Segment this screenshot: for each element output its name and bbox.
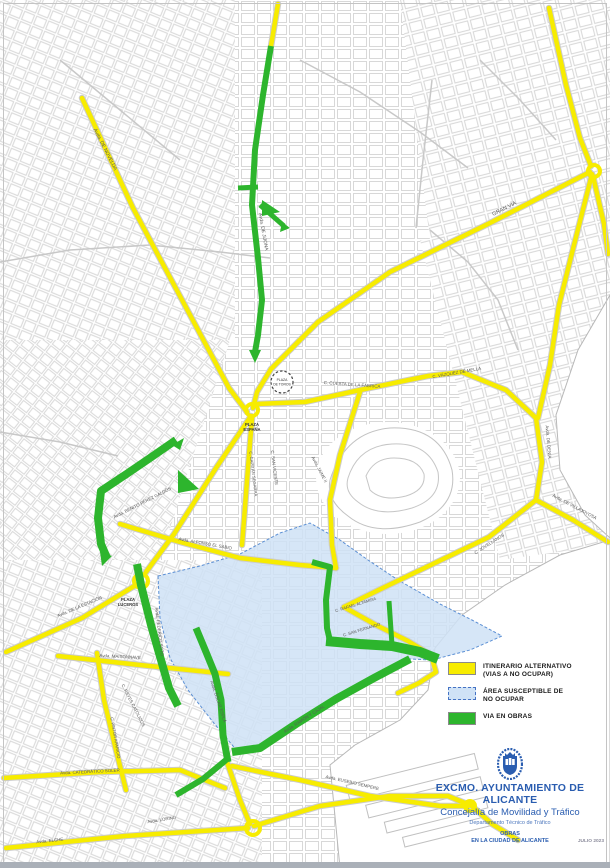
- map-page: PLAZADE TOROSPLAZAESPAÑAPLAZALUCEROS Avd…: [0, 0, 610, 868]
- plaza-label: LUCEROS: [118, 602, 139, 607]
- legend-label: VIA EN OBRAS: [483, 712, 532, 721]
- department-name: Concejalía de Movilidad y Tráfico: [410, 807, 610, 818]
- plaza-de-toros-label: PLAZA: [277, 378, 288, 382]
- via-en-obras-route: [238, 187, 258, 188]
- map-legend: ITINERARIO ALTERNATIVO (VIAS A NO OCUPAR…: [448, 662, 606, 733]
- yellow-swatch: [448, 662, 476, 675]
- blue-dashed-swatch: [448, 687, 476, 700]
- title-block: EXCMO. AYUNTAMIENTO DE ALICANTE Concejal…: [410, 748, 610, 845]
- document-date: JULIO 2023: [578, 839, 604, 844]
- page-bottom-edge: [0, 862, 610, 868]
- svg-text:DE TOROS: DE TOROS: [273, 383, 291, 387]
- alicante-coat-of-arms: [497, 748, 523, 780]
- legend-item-area: ÁREA SUSCEPTIBLE DE NO OCUPAR: [448, 687, 606, 704]
- sub-department-name: Departamento Técnico de Tráfico: [410, 820, 610, 826]
- green-swatch: [448, 712, 476, 725]
- legend-item-obras: VIA EN OBRAS: [448, 712, 606, 725]
- organization-name: EXCMO. AYUNTAMIENTO DE ALICANTE: [410, 782, 610, 806]
- via-en-obras-route: [389, 601, 392, 645]
- legend-label: ITINERARIO ALTERNATIVO (VIAS A NO OCUPAR…: [483, 662, 572, 679]
- alicante-map: PLAZADE TOROSPLAZAESPAÑAPLAZALUCEROS Avd…: [0, 0, 610, 868]
- plaza-label: ESPAÑA: [243, 427, 260, 432]
- legend-item-itinerario: ITINERARIO ALTERNATIVO (VIAS A NO OCUPAR…: [448, 662, 606, 679]
- legend-label: ÁREA SUSCEPTIBLE DE NO OCUPAR: [483, 687, 563, 704]
